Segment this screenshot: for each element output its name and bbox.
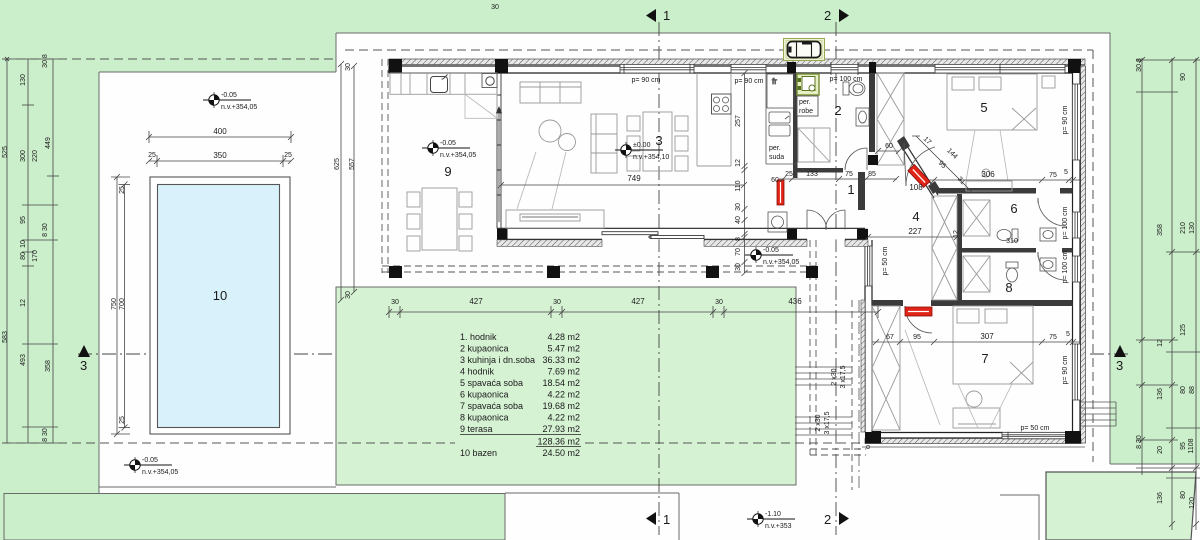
- svg-text:136: 136: [1157, 492, 1164, 504]
- svg-text:p= 100 cm: p= 100 cm: [1062, 206, 1069, 239]
- svg-text:60: 60: [771, 177, 779, 184]
- svg-text:2 kupaonica: 2 kupaonica: [460, 344, 509, 354]
- svg-text:25: 25: [148, 152, 156, 159]
- svg-text:80: 80: [20, 252, 27, 260]
- svg-text:p= 90 cm: p= 90 cm: [735, 78, 764, 85]
- svg-text:per.: per.: [769, 145, 781, 152]
- svg-text:1108: 1108: [1188, 438, 1195, 453]
- svg-text:136: 136: [1157, 388, 1164, 400]
- svg-text:30: 30: [491, 4, 499, 11]
- svg-text:5.47 m2: 5.47 m2: [547, 344, 580, 354]
- svg-text:2 x30: 2 x30: [815, 414, 822, 431]
- svg-text:p= 50 cm: p= 50 cm: [1021, 425, 1050, 432]
- svg-text:3 x17,5: 3 x17,5: [840, 365, 847, 388]
- svg-text:210: 210: [1180, 222, 1187, 234]
- svg-text:2 x30: 2 x30: [831, 368, 838, 385]
- svg-text:95: 95: [1180, 442, 1187, 450]
- svg-text:8: 8: [735, 237, 742, 241]
- svg-text:p= 100 cm: p= 100 cm: [1062, 250, 1069, 283]
- svg-text:3: 3: [1116, 358, 1123, 373]
- svg-text:p= 100 cm: p= 100 cm: [830, 76, 863, 83]
- svg-text:7: 7: [981, 351, 988, 366]
- svg-text:4.28 m2: 4.28 m2: [547, 332, 580, 342]
- svg-text:306: 306: [981, 170, 995, 179]
- svg-text:128.36 m2: 128.36 m2: [537, 437, 580, 447]
- svg-text:30: 30: [345, 291, 352, 299]
- svg-text:427: 427: [469, 297, 483, 306]
- svg-text:700: 700: [119, 298, 126, 310]
- svg-text:60: 60: [885, 143, 893, 150]
- svg-text:3 kuhinja i dn.soba: 3 kuhinja i dn.soba: [460, 355, 535, 365]
- svg-text:4.22 m2: 4.22 m2: [547, 413, 580, 423]
- svg-text:7 spavaća soba: 7 spavaća soba: [460, 401, 523, 411]
- svg-text:-0.05: -0.05: [142, 457, 158, 464]
- svg-text:8 kupaonica: 8 kupaonica: [460, 413, 509, 423]
- svg-text:750: 750: [111, 298, 118, 310]
- svg-text:5 spavaća soba: 5 spavaća soba: [460, 378, 523, 388]
- svg-text:suda: suda: [769, 154, 784, 161]
- svg-text:130: 130: [1189, 222, 1196, 234]
- svg-text:75: 75: [1049, 172, 1057, 179]
- svg-text:120: 120: [1189, 497, 1196, 509]
- svg-text:12: 12: [1157, 339, 1164, 347]
- svg-text:427: 427: [631, 297, 645, 306]
- svg-text:25: 25: [119, 186, 126, 194]
- svg-text:30: 30: [553, 299, 561, 306]
- svg-text:n.v.+354,05: n.v.+354,05: [763, 259, 799, 266]
- svg-text:30: 30: [391, 299, 399, 306]
- svg-text:436: 436: [788, 297, 802, 306]
- svg-text:25: 25: [284, 152, 292, 159]
- svg-text:robe: robe: [799, 108, 813, 115]
- svg-text:8 30: 8 30: [1136, 435, 1143, 449]
- svg-text:-0.05: -0.05: [221, 92, 237, 99]
- svg-text:1: 1: [847, 182, 854, 197]
- svg-text:per.: per.: [799, 99, 811, 106]
- svg-text:p= 50 cm: p= 50 cm: [882, 246, 889, 275]
- svg-text:1: 1: [663, 512, 670, 527]
- svg-text:12: 12: [20, 299, 27, 307]
- svg-text:18.54 m2: 18.54 m2: [542, 378, 580, 388]
- svg-text:9 terasa: 9 terasa: [460, 424, 493, 434]
- svg-text:7.69 m2: 7.69 m2: [547, 367, 580, 377]
- svg-text:n.v.+354,10: n.v.+354,10: [633, 154, 669, 161]
- svg-text:85: 85: [868, 171, 876, 178]
- svg-text:133: 133: [806, 171, 818, 178]
- svg-text:1. hodnik: 1. hodnik: [460, 332, 497, 342]
- svg-text:400: 400: [213, 127, 227, 136]
- svg-text:310: 310: [1006, 238, 1018, 245]
- svg-text:95: 95: [913, 334, 921, 341]
- svg-text:70: 70: [735, 248, 742, 256]
- svg-text:557: 557: [349, 158, 356, 170]
- svg-text:4 hodnik: 4 hodnik: [460, 367, 495, 377]
- svg-text:90: 90: [1180, 73, 1187, 81]
- svg-text:n.v.+354,05: n.v.+354,05: [440, 152, 476, 159]
- svg-text:350: 350: [213, 151, 227, 160]
- svg-text:5: 5: [1064, 169, 1068, 176]
- svg-text:30: 30: [735, 203, 742, 211]
- svg-text:2: 2: [834, 103, 841, 118]
- svg-text:125: 125: [1180, 324, 1187, 336]
- svg-text:36.33 m2: 36.33 m2: [542, 355, 580, 365]
- svg-text:8 30: 8 30: [42, 428, 49, 442]
- svg-text:3 x17,5: 3 x17,5: [824, 411, 831, 434]
- svg-text:9: 9: [444, 164, 451, 179]
- svg-text:5: 5: [1066, 331, 1070, 338]
- svg-text:749: 749: [627, 174, 641, 183]
- svg-text:30: 30: [345, 63, 352, 71]
- svg-text:220: 220: [32, 150, 39, 162]
- svg-text:10: 10: [213, 288, 227, 303]
- svg-text:80: 80: [1180, 386, 1187, 394]
- svg-text:±0.00: ±0.00: [633, 142, 651, 149]
- svg-text:30 8: 30 8: [1136, 58, 1143, 72]
- svg-text:4.22 m2: 4.22 m2: [547, 390, 580, 400]
- svg-text:8 30: 8 30: [42, 223, 49, 237]
- svg-text:1: 1: [663, 8, 670, 23]
- svg-text:p= 90 cm: p= 90 cm: [1062, 105, 1069, 134]
- svg-text:n.v.+353: n.v.+353: [765, 523, 792, 530]
- svg-text:40: 40: [735, 216, 742, 224]
- svg-text:95: 95: [20, 216, 27, 224]
- svg-text:8: 8: [1005, 280, 1012, 295]
- svg-text:30: 30: [715, 299, 723, 306]
- svg-text:p= 90 cm: p= 90 cm: [632, 77, 661, 84]
- svg-text:108: 108: [909, 183, 923, 192]
- svg-text:2: 2: [824, 8, 831, 23]
- svg-text:25: 25: [119, 416, 126, 424]
- svg-text:493: 493: [20, 354, 27, 366]
- svg-text:2: 2: [824, 512, 831, 527]
- svg-text:n.v.+354,05: n.v.+354,05: [142, 469, 178, 476]
- svg-text:-0.05: -0.05: [763, 247, 779, 254]
- svg-text:110: 110: [735, 180, 742, 191]
- svg-text:n.v.+354,05: n.v.+354,05: [221, 104, 257, 111]
- svg-text:3: 3: [655, 133, 662, 148]
- svg-text:67: 67: [886, 334, 894, 341]
- svg-text:88: 88: [1189, 386, 1196, 394]
- svg-text:19.68 m2: 19.68 m2: [542, 401, 580, 411]
- svg-text:75: 75: [845, 171, 853, 178]
- svg-text:6: 6: [1010, 201, 1017, 216]
- svg-text:12: 12: [735, 159, 742, 167]
- svg-text:80: 80: [1180, 491, 1187, 499]
- svg-text:27.93 m2: 27.93 m2: [542, 424, 580, 434]
- svg-text:257: 257: [735, 115, 742, 127]
- svg-text:583: 583: [2, 331, 9, 343]
- svg-text:75: 75: [1049, 334, 1057, 341]
- svg-text:358: 358: [1157, 224, 1164, 236]
- svg-text:300: 300: [20, 150, 27, 162]
- svg-text:5: 5: [980, 100, 987, 115]
- svg-text:30 8: 30 8: [42, 54, 49, 68]
- svg-text:170: 170: [32, 250, 39, 262]
- svg-text:358: 358: [45, 360, 52, 372]
- svg-text:525: 525: [2, 146, 9, 158]
- svg-text:p= 90 cm: p= 90 cm: [1062, 355, 1069, 384]
- svg-text:-0.05: -0.05: [440, 140, 456, 147]
- svg-text:3: 3: [80, 358, 87, 373]
- svg-text:24.50 m2: 24.50 m2: [542, 448, 580, 458]
- svg-text:12: 12: [953, 230, 960, 238]
- svg-text:10: 10: [20, 240, 27, 248]
- svg-text:6 kupaonica: 6 kupaonica: [460, 390, 509, 400]
- svg-text:20: 20: [1157, 446, 1164, 454]
- svg-text:10 bazen: 10 bazen: [460, 448, 497, 458]
- svg-text:-1.10: -1.10: [765, 511, 781, 518]
- svg-text:4: 4: [912, 209, 919, 224]
- svg-text:130: 130: [20, 74, 27, 86]
- svg-text:227: 227: [908, 227, 922, 236]
- svg-text:fr: fr: [772, 77, 777, 86]
- svg-text:449: 449: [45, 137, 52, 149]
- svg-text:625: 625: [334, 158, 341, 170]
- svg-text:30: 30: [735, 263, 742, 271]
- svg-text:25: 25: [785, 171, 793, 178]
- svg-text:307: 307: [980, 332, 994, 341]
